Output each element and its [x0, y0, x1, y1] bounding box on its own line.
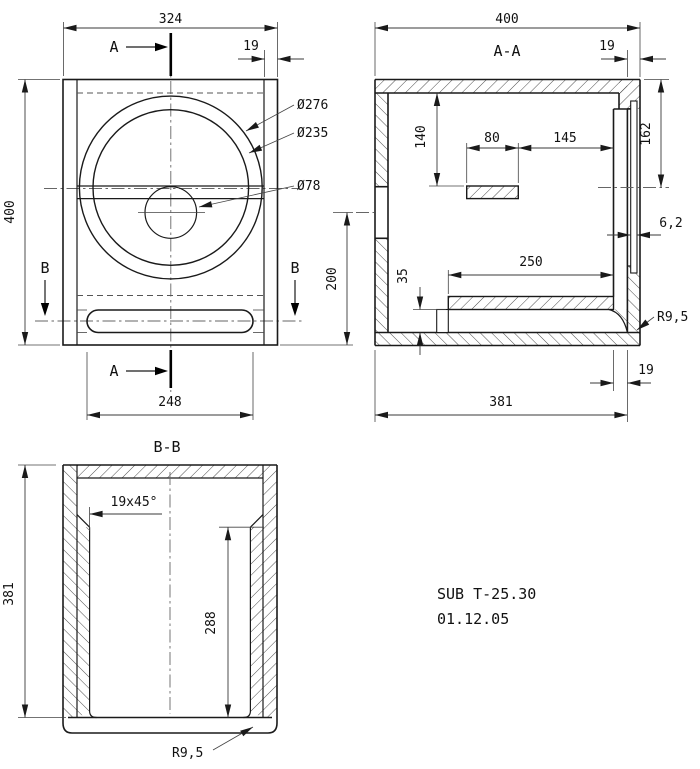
- dia-port-label: Ø78: [297, 179, 320, 194]
- bb-right-wall-hatch: [263, 465, 277, 718]
- back-wall-hatch: [627, 266, 640, 333]
- dim-depth: 400: [495, 12, 518, 27]
- section-a-label-top: A: [109, 38, 118, 56]
- dim-panel-thickness: 6,2: [659, 216, 682, 231]
- dim-port-center: 200: [325, 267, 340, 290]
- section-aa-title: A-A: [493, 42, 520, 60]
- title-block: SUB T-25.30 01.12.05: [437, 585, 536, 628]
- bb-corner-radius-left: [63, 723, 72, 733]
- dim-wall-top: 19: [599, 39, 615, 54]
- section-b-label-left: B: [40, 259, 49, 277]
- bb-right-liner-hatch: [250, 527, 263, 715]
- back-cove-hatch: [609, 310, 627, 333]
- chamfer-note: 19x45°: [111, 495, 158, 510]
- port-shelf: [448, 297, 613, 310]
- drawing-canvas: A A B B 324 19 400 200 248 Ø276: [0, 0, 700, 769]
- section-a-label-bottom: A: [109, 362, 118, 380]
- front-wall-hatch-upper: [375, 93, 388, 187]
- dia-outer-label: Ø276: [297, 98, 328, 113]
- bb-corner-radius-right: [268, 723, 277, 733]
- recessed-panel: [631, 101, 637, 273]
- dim-brace-to-back: 145: [553, 131, 576, 146]
- dim-slot-width: 248: [158, 395, 181, 410]
- bb-left-liner-hatch: [77, 527, 90, 715]
- port-end-block: [437, 310, 449, 333]
- dim-brace-width: 80: [484, 131, 500, 146]
- section-bb-title: B-B: [153, 438, 180, 456]
- section-a-arrow-top: [155, 43, 168, 51]
- drawing-title: SUB T-25.30: [437, 585, 536, 603]
- section-aa-view: 400 A-A 19 140 80 145 162 6,2 250 35: [356, 12, 688, 422]
- bottom-wall-hatch: [375, 333, 640, 346]
- cad-sheet: A A B B 324 19 400 200 248 Ø276: [0, 0, 700, 769]
- section-b-label-right: B: [290, 259, 299, 277]
- dim-height: 400: [3, 200, 18, 223]
- dim-inner-depth: 381: [489, 395, 512, 410]
- dim-port-height: 35: [396, 268, 411, 284]
- dim-bb-depth: 381: [2, 582, 17, 605]
- dim-brace-drop: 140: [414, 125, 429, 148]
- drawing-date: 01.12.05: [437, 610, 509, 628]
- dim-driver-center: 162: [639, 122, 654, 145]
- dim-shelf-length: 250: [519, 255, 542, 270]
- aa-radius-note: R9,5: [657, 310, 688, 325]
- front-wall-hatch-lower: [375, 238, 388, 332]
- bb-radius-note: R9,5: [172, 746, 203, 761]
- section-b-arrow-left: [41, 303, 49, 316]
- bb-left-wall-hatch: [63, 465, 77, 718]
- front-view: A A B B 324 19 400 200 248 Ø276: [3, 12, 353, 420]
- bb-chamfer-right: [250, 515, 263, 528]
- top-wall-hatch: [375, 80, 627, 94]
- section-bb-view: B-B 381 19x45° 288: [2, 438, 277, 761]
- section-a-arrow-bottom: [155, 367, 168, 375]
- dim-wall: 19: [243, 39, 259, 54]
- dia-inner-label: Ø235: [297, 126, 328, 141]
- dim-width: 324: [159, 12, 183, 27]
- bb-chamfer-left: [77, 515, 90, 528]
- brace-block: [467, 186, 519, 199]
- dim-wall-bottom: 19: [638, 363, 654, 378]
- section-b-arrow-right: [291, 303, 299, 316]
- dim-liner-length: 288: [204, 611, 219, 634]
